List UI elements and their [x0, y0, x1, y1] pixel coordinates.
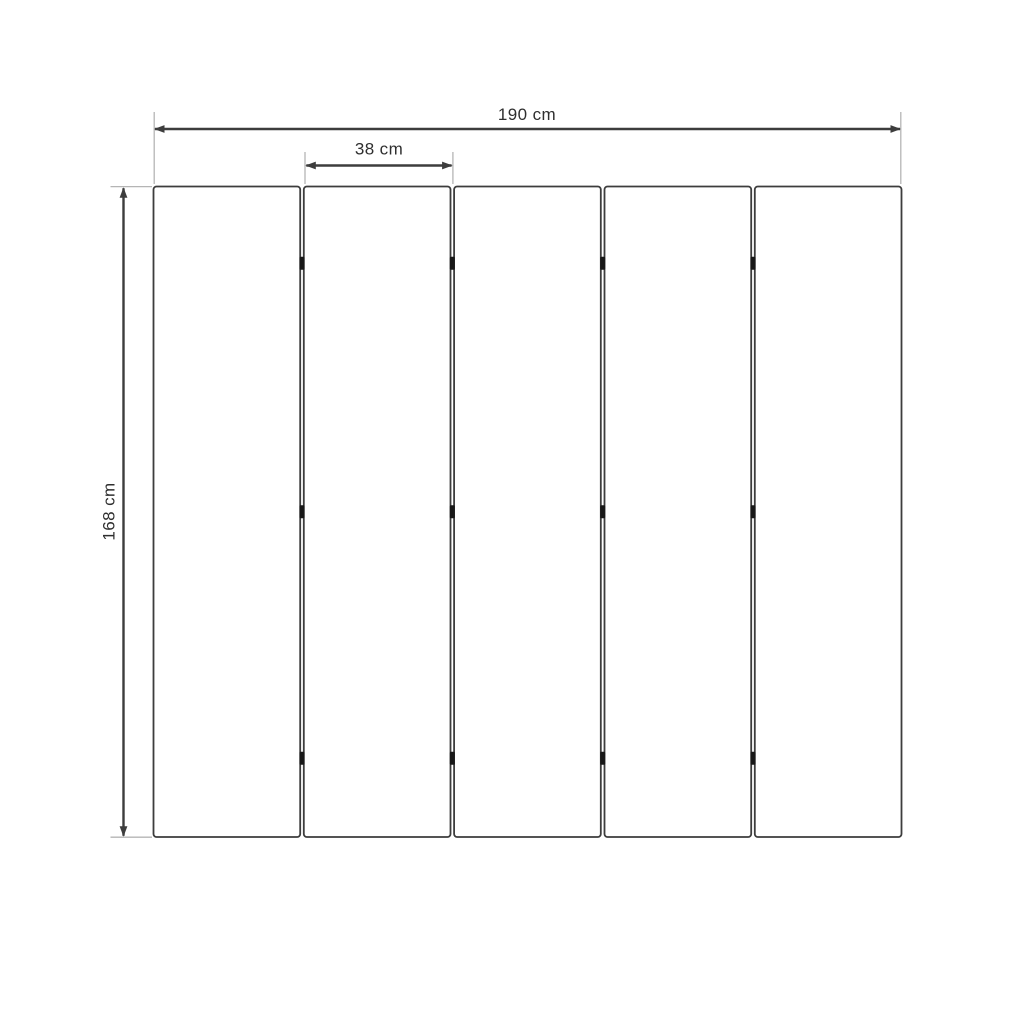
total-width-dimension: 190 cm	[155, 105, 900, 129]
screen-panel-4	[605, 187, 752, 838]
screen-panel-1	[154, 187, 301, 838]
hinge-marker	[751, 257, 756, 270]
hinge-marker	[751, 505, 756, 518]
screen-panels	[154, 187, 902, 838]
dimension-diagram: 190 cm 38 cm 168 cm	[0, 0, 1024, 1024]
hinge-marker	[600, 257, 605, 270]
hinge-marker	[450, 505, 455, 518]
hinge-marker	[751, 752, 756, 765]
hinge-marker	[450, 257, 455, 270]
hinge-marker	[450, 752, 455, 765]
hinge-marker	[300, 752, 305, 765]
height-dimension: 168 cm	[100, 188, 124, 835]
panel-width-label: 38 cm	[355, 140, 403, 159]
height-label: 168 cm	[100, 482, 119, 540]
screen-panel-5	[755, 187, 902, 838]
screen-panel-3	[454, 187, 601, 838]
total-width-label: 190 cm	[498, 105, 556, 124]
hinge-marker	[600, 505, 605, 518]
diagram-stage: 190 cm 38 cm 168 cm	[0, 0, 1024, 1024]
hinge-marker	[300, 505, 305, 518]
hinge-marker	[600, 752, 605, 765]
hinge-marker	[300, 257, 305, 270]
panel-width-dimension: 38 cm	[306, 140, 451, 166]
screen-panel-2	[304, 187, 451, 838]
